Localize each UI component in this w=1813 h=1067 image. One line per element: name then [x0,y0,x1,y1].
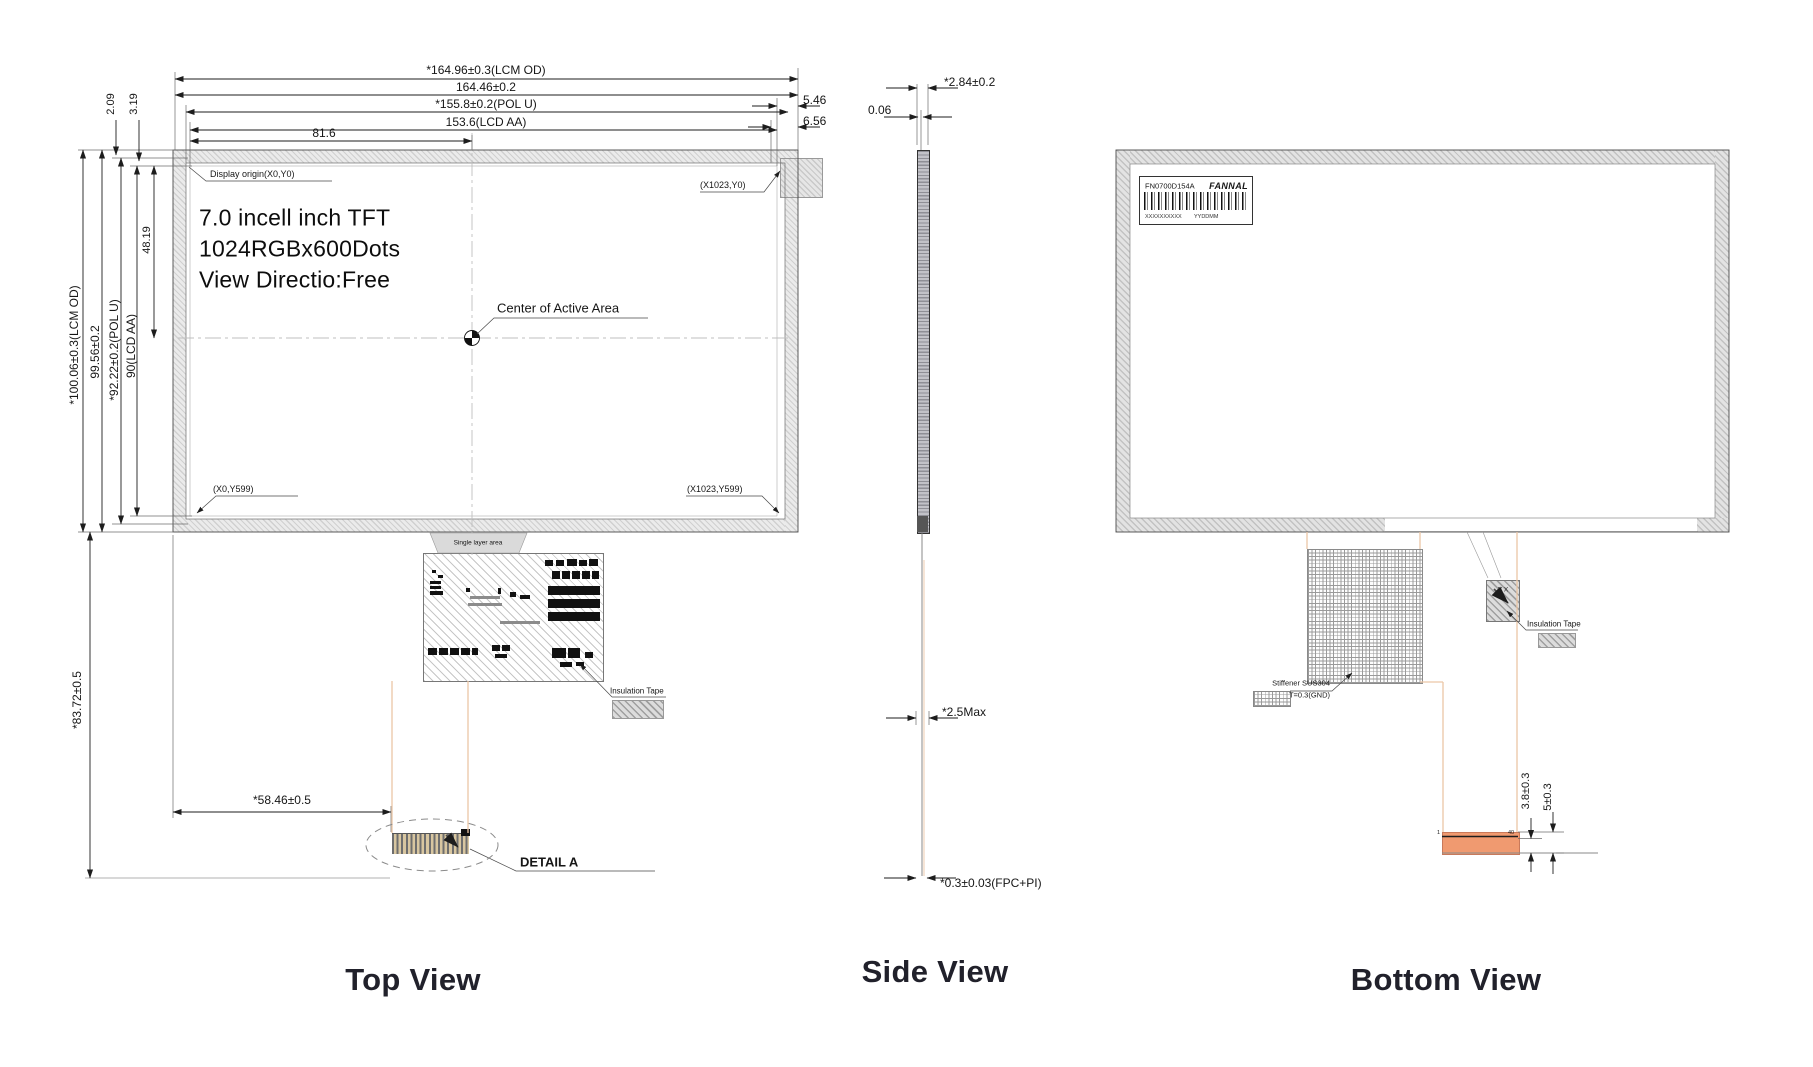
dim-width-aa: 153.6(LCD AA) [446,115,527,129]
spec-line-3: View Directio:Free [199,267,390,294]
dim-width-lcm: *164.96±0.3(LCM OD) [426,63,545,77]
center-of-active-area-label: Center of Active Area [497,301,619,316]
dim-connector-1: 3.8±0.3 [1520,773,1532,810]
spec-line-1: 7.0 incell inch TFT [199,205,390,232]
bottom-view-leaders [1290,532,1578,691]
dim-right-1: 5.46 [803,93,826,107]
dim-height-lcm: *100.06±0.3(LCM OD) [67,285,81,404]
center-symbol [465,331,480,346]
dim-fpc-length: *83.72±0.5 [70,671,84,729]
display-origin-label: Display origin(X0,Y0) [210,169,295,179]
corner-bottom-right-label: (X1023,Y599) [687,484,743,494]
corner-top-right-label: (X1023,Y0) [700,180,746,190]
dim-max: *2.5Max [942,705,986,719]
drawing-canvas: FN0700D154A FANNAL XXXXXXXXXX YYDDMM Y X [0,0,1813,1067]
component-box-parts [428,559,600,667]
stiffener-label-line1: Stiffener SUS304 [1272,679,1330,688]
single-layer-area-label: Single layer area [454,540,503,547]
dim-connector-offset: *58.46±0.5 [253,793,311,807]
corner-bottom-left-label: (X0,Y599) [213,484,254,494]
detail-a-label: DETAIL A [520,855,578,870]
dim-connector-2: 5±0.3 [1542,783,1554,810]
dim-height-outline: 99.56±0.2 [88,325,102,378]
bottom-view-title: Bottom View [1351,962,1541,998]
dim-offset: 0.06 [868,103,891,117]
dim-top-1: 2.09 [105,93,117,114]
pin-first-label: 1 [1437,830,1440,836]
side-view-linework [884,84,958,878]
insulation-tape-label-bottom: Insulation Tape [1527,620,1581,629]
dim-height-half: 48.19 [141,226,153,254]
dim-width-half: 81.6 [312,126,335,140]
bottom-view-outline [1116,150,1729,532]
dim-width-outline: 164.46±0.2 [456,80,516,94]
spec-line-2: 1024RGBx600Dots [199,236,400,263]
dim-height-aa: 90(LCD AA) [124,314,138,378]
bottom-view-connector-lines [1442,812,1598,874]
fpc-tail-top-view [366,681,498,871]
insulation-tape-label-top: Insulation Tape [610,687,664,696]
dim-thickness: *2.84±0.2 [944,75,995,89]
dim-top-2: 3.19 [128,93,140,114]
bottom-view-fpc-lines [1307,532,1517,832]
dim-right-2: 6.56 [803,114,826,128]
dim-height-pol: *92.22±0.2(POL U) [107,299,121,401]
stiffener-label-line2: T=0.3(GND) [1289,691,1330,700]
dim-width-pol: *155.8±0.2(POL U) [435,97,537,111]
side-view-title: Side View [862,954,1009,990]
dim-fpc: *0.3±0.03(FPC+PI) [940,876,1042,890]
top-view-title: Top View [345,962,481,998]
pin-last-label: 40 [1508,830,1514,836]
drawing-linework [0,0,1813,1067]
top-view-dim-lines [83,79,820,878]
